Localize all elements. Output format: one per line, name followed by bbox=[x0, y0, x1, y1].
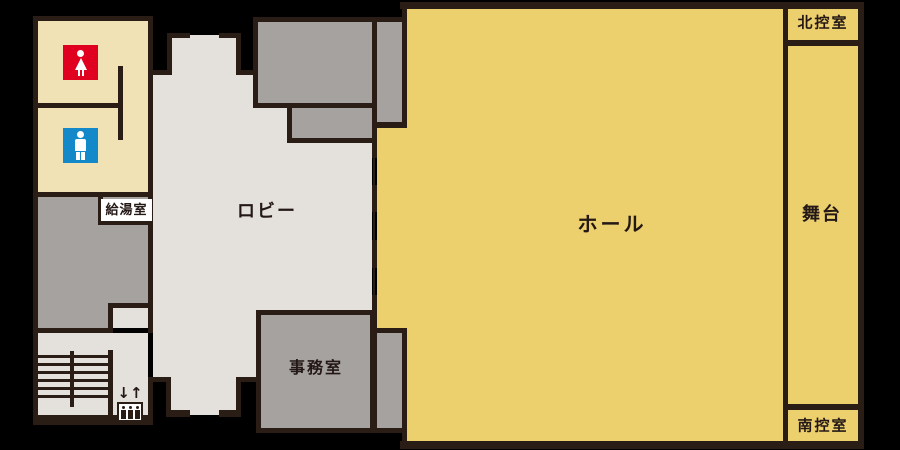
person-pictogram bbox=[135, 406, 140, 419]
wall bbox=[372, 122, 407, 128]
stair-step bbox=[38, 379, 110, 382]
wall bbox=[108, 303, 148, 308]
elevator-icon bbox=[117, 402, 143, 422]
wall bbox=[372, 240, 377, 268]
wall bbox=[400, 2, 864, 9]
storage-room-1 bbox=[258, 22, 372, 103]
man-pictogram-legs bbox=[76, 152, 85, 160]
hall-label: ホール bbox=[578, 214, 647, 234]
wall bbox=[167, 33, 172, 75]
wall bbox=[118, 66, 123, 140]
wall bbox=[253, 103, 377, 108]
storage-room-3 bbox=[292, 108, 372, 138]
womens-restroom-icon bbox=[63, 45, 98, 80]
wall bbox=[108, 350, 113, 425]
wall bbox=[402, 333, 407, 443]
wall bbox=[287, 138, 377, 143]
entrance-top-vestibule bbox=[170, 35, 238, 75]
wall bbox=[241, 377, 261, 382]
stage-room bbox=[788, 46, 858, 404]
lobby-label: ロビー bbox=[237, 203, 297, 221]
wall bbox=[236, 33, 241, 75]
kitchenette-label-box: 給湯室 bbox=[101, 199, 152, 221]
stair-step bbox=[38, 395, 110, 398]
north-greenroom-label: 北控室 bbox=[797, 16, 848, 31]
wall bbox=[402, 9, 407, 128]
wall bbox=[33, 192, 153, 197]
stair-step bbox=[38, 371, 110, 374]
wall bbox=[167, 33, 190, 38]
storage-room-4 bbox=[377, 333, 402, 428]
wall bbox=[372, 128, 377, 158]
wall bbox=[253, 17, 402, 22]
south-greenroom-label: 南控室 bbox=[797, 419, 848, 434]
wall bbox=[400, 441, 864, 449]
wall bbox=[783, 404, 864, 410]
wall bbox=[148, 377, 171, 382]
person-pictogram bbox=[128, 406, 133, 419]
stair-rail bbox=[70, 351, 74, 407]
woman-pictogram-dress bbox=[75, 58, 87, 70]
wall bbox=[783, 2, 788, 449]
wall bbox=[33, 16, 153, 21]
floor-plan: ↓↑ 給湯室 ホール ロビー 舞台 北控室 南控室 事務室 bbox=[0, 0, 900, 450]
wall bbox=[253, 17, 258, 108]
kitchenette-label: 給湯室 bbox=[105, 204, 147, 217]
wall bbox=[372, 185, 377, 212]
wall bbox=[287, 103, 292, 143]
office-label: 事務室 bbox=[289, 360, 343, 376]
woman-pictogram-head bbox=[77, 50, 84, 57]
wall bbox=[256, 428, 407, 433]
stair-step bbox=[38, 355, 110, 358]
stage-label: 舞台 bbox=[802, 206, 842, 224]
stair-step bbox=[38, 387, 110, 390]
man-pictogram-head bbox=[77, 131, 84, 138]
wall bbox=[148, 70, 172, 75]
hall-extension bbox=[377, 128, 407, 333]
wall bbox=[166, 410, 190, 417]
wall bbox=[372, 17, 377, 128]
mens-restroom-icon bbox=[63, 128, 98, 163]
man-pictogram-body bbox=[75, 139, 86, 151]
wall bbox=[783, 40, 864, 46]
wall bbox=[219, 33, 241, 38]
wall bbox=[148, 377, 153, 425]
elevator-arrows-icon: ↓↑ bbox=[117, 384, 142, 402]
wall bbox=[38, 103, 123, 108]
wall bbox=[219, 410, 241, 417]
storage-room-2 bbox=[377, 22, 402, 122]
utility-room-notch bbox=[113, 308, 148, 328]
wall bbox=[148, 16, 153, 333]
wall bbox=[256, 310, 261, 433]
wall bbox=[33, 328, 113, 333]
wall bbox=[256, 310, 375, 315]
stair-step bbox=[38, 363, 110, 366]
woman-pictogram-legs bbox=[78, 70, 84, 76]
person-pictogram bbox=[121, 406, 126, 419]
wall bbox=[858, 2, 864, 449]
